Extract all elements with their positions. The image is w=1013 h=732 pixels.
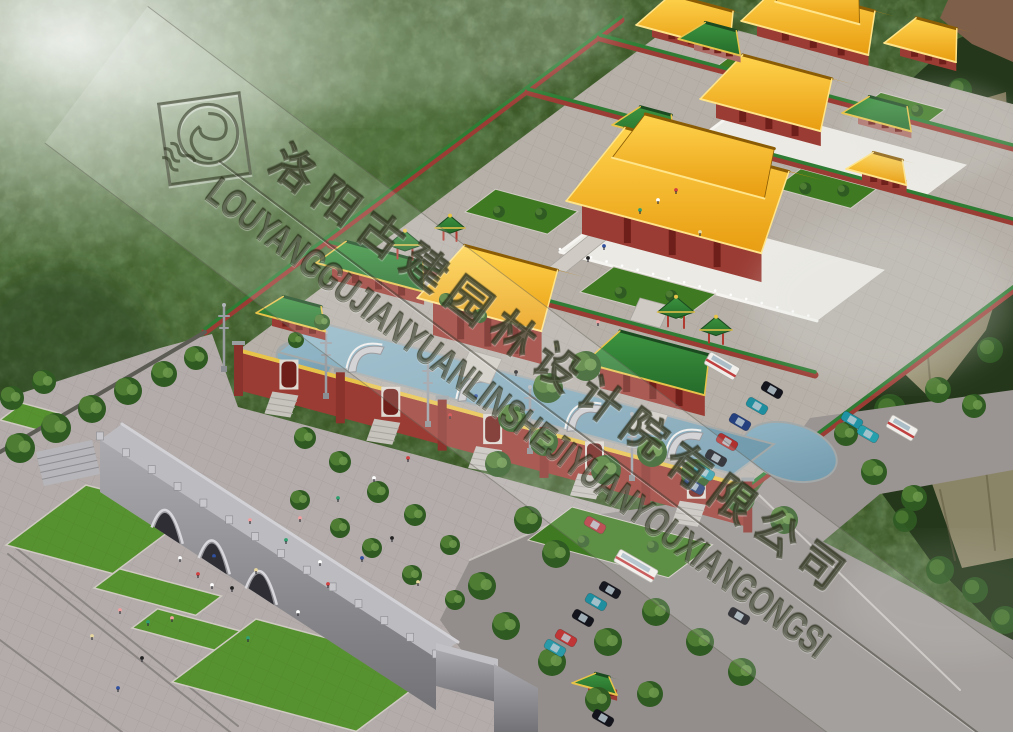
tree [514,506,542,534]
tree [642,598,670,626]
tree [591,455,621,485]
tree [530,428,558,456]
tree [925,377,951,403]
hall-door [714,240,721,267]
crenellation [329,583,336,591]
gate-pier [234,344,243,396]
tree [114,377,142,405]
hall-door [669,228,676,255]
tree [594,628,622,656]
tree [861,459,887,485]
tree [901,485,927,511]
tree [0,386,24,410]
crenellation [277,549,284,557]
tree [294,427,316,449]
tree [962,394,986,418]
tree [686,628,714,656]
tree [314,314,330,330]
crenellation [381,616,388,624]
crenellation [174,482,181,490]
gorge-fog [754,220,1013,380]
crenellation [148,466,155,474]
tree [473,309,487,323]
tree [288,332,304,348]
gate-pier [336,371,345,423]
tree [184,346,208,370]
tree [151,361,177,387]
tree [770,506,798,534]
hall-door [457,308,464,339]
hall-door [624,216,631,243]
tree [404,504,426,526]
crenellation [303,566,310,574]
tree [32,370,56,394]
crenellation [252,533,259,541]
crenellation [122,449,129,457]
crenellation [97,432,104,440]
tree [440,535,460,555]
tree [362,538,382,558]
tree [637,681,663,707]
tree [571,351,601,381]
tree [728,658,756,686]
tree [329,451,351,473]
gate-door [485,416,500,442]
crenellation [407,633,414,641]
tree [468,572,496,600]
tree [492,612,520,640]
tree [367,481,389,503]
tree [5,433,35,463]
gate-pier [438,399,447,451]
architectural-rendering: 洛阳古建园林设计院有限公司 LOUYANGGUJIANYUANLINSHEJIY… [0,0,1013,732]
tree [290,490,310,510]
tree [725,483,755,513]
hall-door [511,323,518,354]
tree [542,540,570,568]
tree [637,437,667,467]
crenellation [355,600,362,608]
tree [533,373,563,403]
tree [41,413,71,443]
tree [485,451,511,477]
temple-complex-rendering [0,0,1013,732]
tree [330,518,350,538]
gate-door [383,389,398,415]
tree [445,590,465,610]
tree [439,293,453,307]
crenellation [200,499,207,507]
gate-door [281,362,296,388]
crenellation [226,516,233,524]
tree [78,395,106,423]
tree [498,404,526,432]
